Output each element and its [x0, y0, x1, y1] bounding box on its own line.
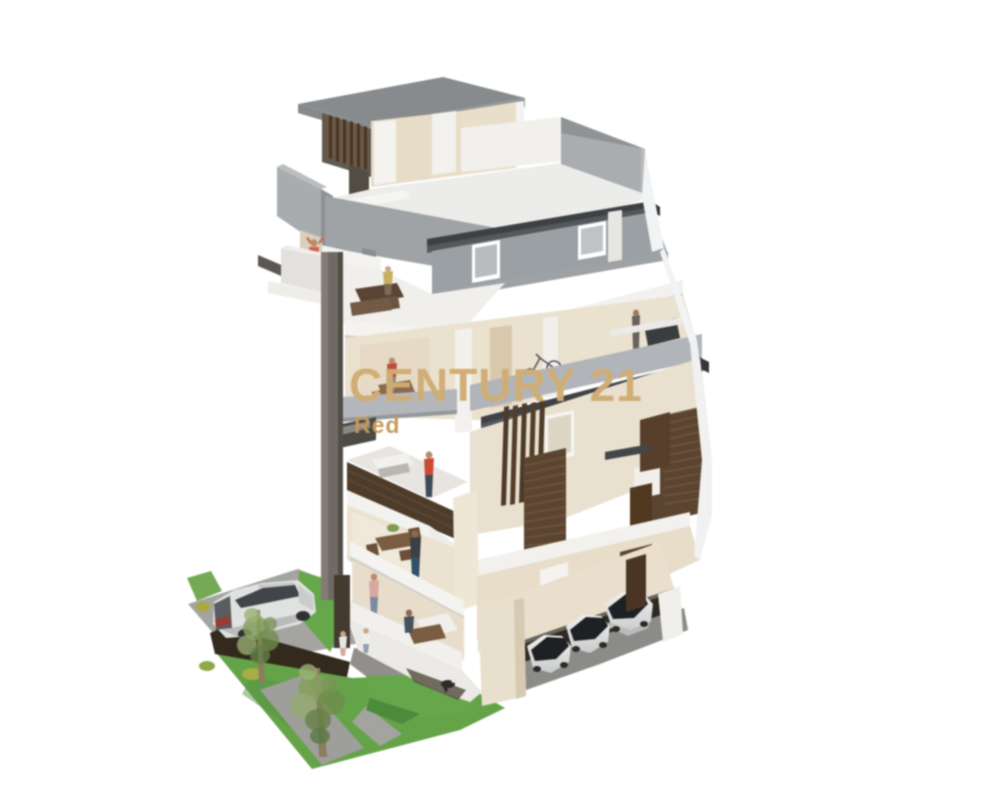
svg-text:Red: Red [354, 412, 400, 438]
svg-text:CENTURY 21: CENTURY 21 [349, 359, 643, 411]
